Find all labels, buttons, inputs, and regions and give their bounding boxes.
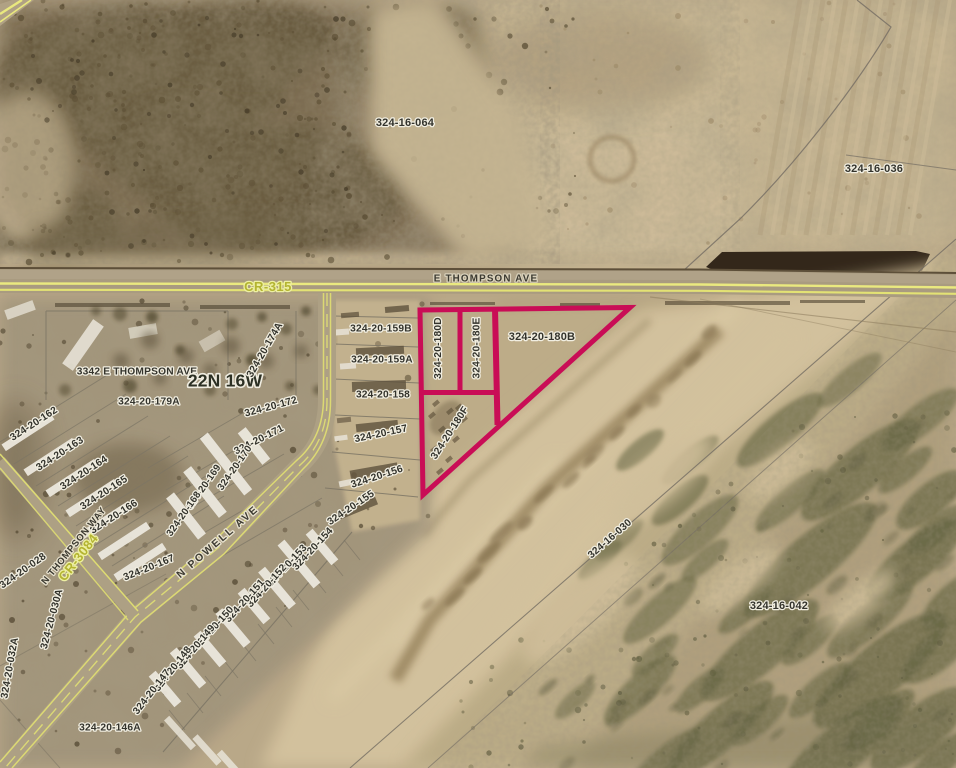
svg-text:324-20-159A: 324-20-159A: [351, 355, 413, 366]
svg-text:E THOMPSON AVE: E THOMPSON AVE: [434, 273, 538, 284]
svg-text:324-16-064: 324-16-064: [376, 117, 435, 129]
svg-text:324-16-036: 324-16-036: [845, 163, 903, 175]
svg-text:324-20-159B: 324-20-159B: [350, 324, 412, 335]
svg-text:324-16-042: 324-16-042: [750, 600, 808, 612]
svg-text:324-20-158: 324-20-158: [356, 390, 410, 401]
svg-text:324-20-180D: 324-20-180D: [433, 317, 444, 379]
svg-text:324-20-180B: 324-20-180B: [509, 331, 575, 343]
svg-text:CR-315: CR-315: [244, 279, 292, 294]
svg-text:324-20-179A: 324-20-179A: [118, 397, 180, 408]
svg-text:324-20-146A: 324-20-146A: [79, 723, 141, 734]
svg-text:324-20-180E: 324-20-180E: [472, 317, 483, 378]
svg-text:3342 E THOMPSON AVE: 3342 E THOMPSON AVE: [77, 367, 197, 378]
